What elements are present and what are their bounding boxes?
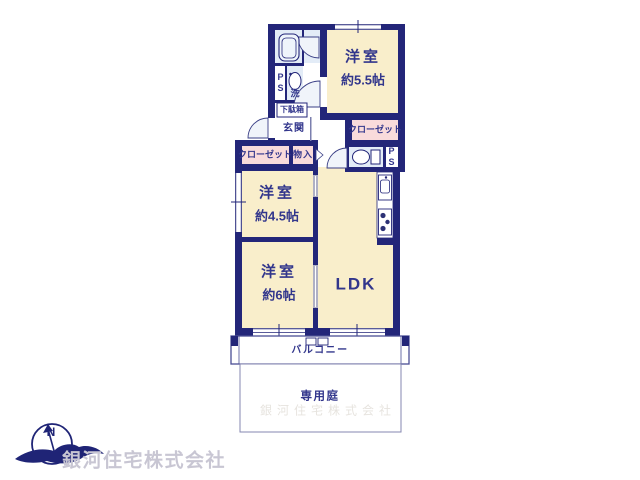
balcony-partition xyxy=(306,338,316,345)
kitchen-faucet-icon xyxy=(385,176,387,178)
ps-top-label: PS xyxy=(276,72,285,94)
closet-right-label: クローゼット xyxy=(348,126,402,135)
wall-segment xyxy=(320,107,327,113)
wall-segment xyxy=(275,63,304,66)
wall-segment xyxy=(393,172,400,337)
stove-burner-icon xyxy=(380,213,385,218)
wall-segment xyxy=(268,30,275,118)
bedroom-4-5-label: 洋室 xyxy=(259,186,295,201)
wall-segment xyxy=(235,237,318,242)
wall-segment xyxy=(398,30,405,172)
storage-door-marker xyxy=(316,149,323,161)
hall-door-arc xyxy=(327,148,347,168)
bedroom-5-5-label: 洋室 xyxy=(345,50,381,65)
stove-burner-icon xyxy=(385,220,389,224)
washbasin-faucet-icon xyxy=(289,73,292,76)
floorplan-page: N 洋室 約5.5帖 クローゼット PS 洗 下駄箱 玄関 クローゼット 物入 … xyxy=(0,0,640,480)
entrance-label: 玄関 xyxy=(283,124,305,134)
balcony-end-wall xyxy=(231,336,238,346)
shoe-cabinet-label: 下駄箱 xyxy=(280,106,304,114)
bedroom-6-size: 約6帖 xyxy=(262,289,295,302)
toilet-tank-icon xyxy=(371,150,380,164)
entrance-door-arc xyxy=(248,118,268,138)
wall-segment xyxy=(235,140,318,146)
balcony-label: バルコニー xyxy=(291,346,348,356)
storage-label: 物入 xyxy=(293,151,313,160)
watermark-text: 銀河住宅株式会社 xyxy=(260,402,396,419)
bedroom-6-area xyxy=(242,242,318,328)
ps-right-label: PS xyxy=(387,146,396,168)
washbasin-label: 洗 xyxy=(290,90,299,99)
bedroom-5-5-size: 約5.5帖 xyxy=(341,74,385,87)
wall-segment xyxy=(320,30,327,77)
balcony-end-wall xyxy=(402,336,409,346)
compass-letter: N xyxy=(47,425,56,439)
toilet-bowl-icon xyxy=(353,150,370,164)
wall-segment xyxy=(320,113,405,120)
wall-segment xyxy=(313,197,318,265)
wall-segment xyxy=(377,238,393,245)
closet-left-label: クローゼット xyxy=(238,151,292,160)
entrance-step-line xyxy=(310,117,312,141)
company-name: 銀河住宅株式会社 xyxy=(62,446,226,473)
ldk-label: LDK xyxy=(336,276,377,293)
balcony-partition xyxy=(318,338,328,345)
wall-segment xyxy=(235,232,242,337)
wall-segment xyxy=(235,164,318,171)
wall-segment xyxy=(268,24,335,30)
wall-segment xyxy=(381,24,405,30)
bedroom-6-label: 洋室 xyxy=(261,265,297,280)
bedroom-5-5-area xyxy=(327,30,398,113)
bedroom-4-5-size: 約4.5帖 xyxy=(255,210,299,223)
bedroom-4-5-area xyxy=(242,171,313,237)
stove-burner-icon xyxy=(380,226,385,231)
